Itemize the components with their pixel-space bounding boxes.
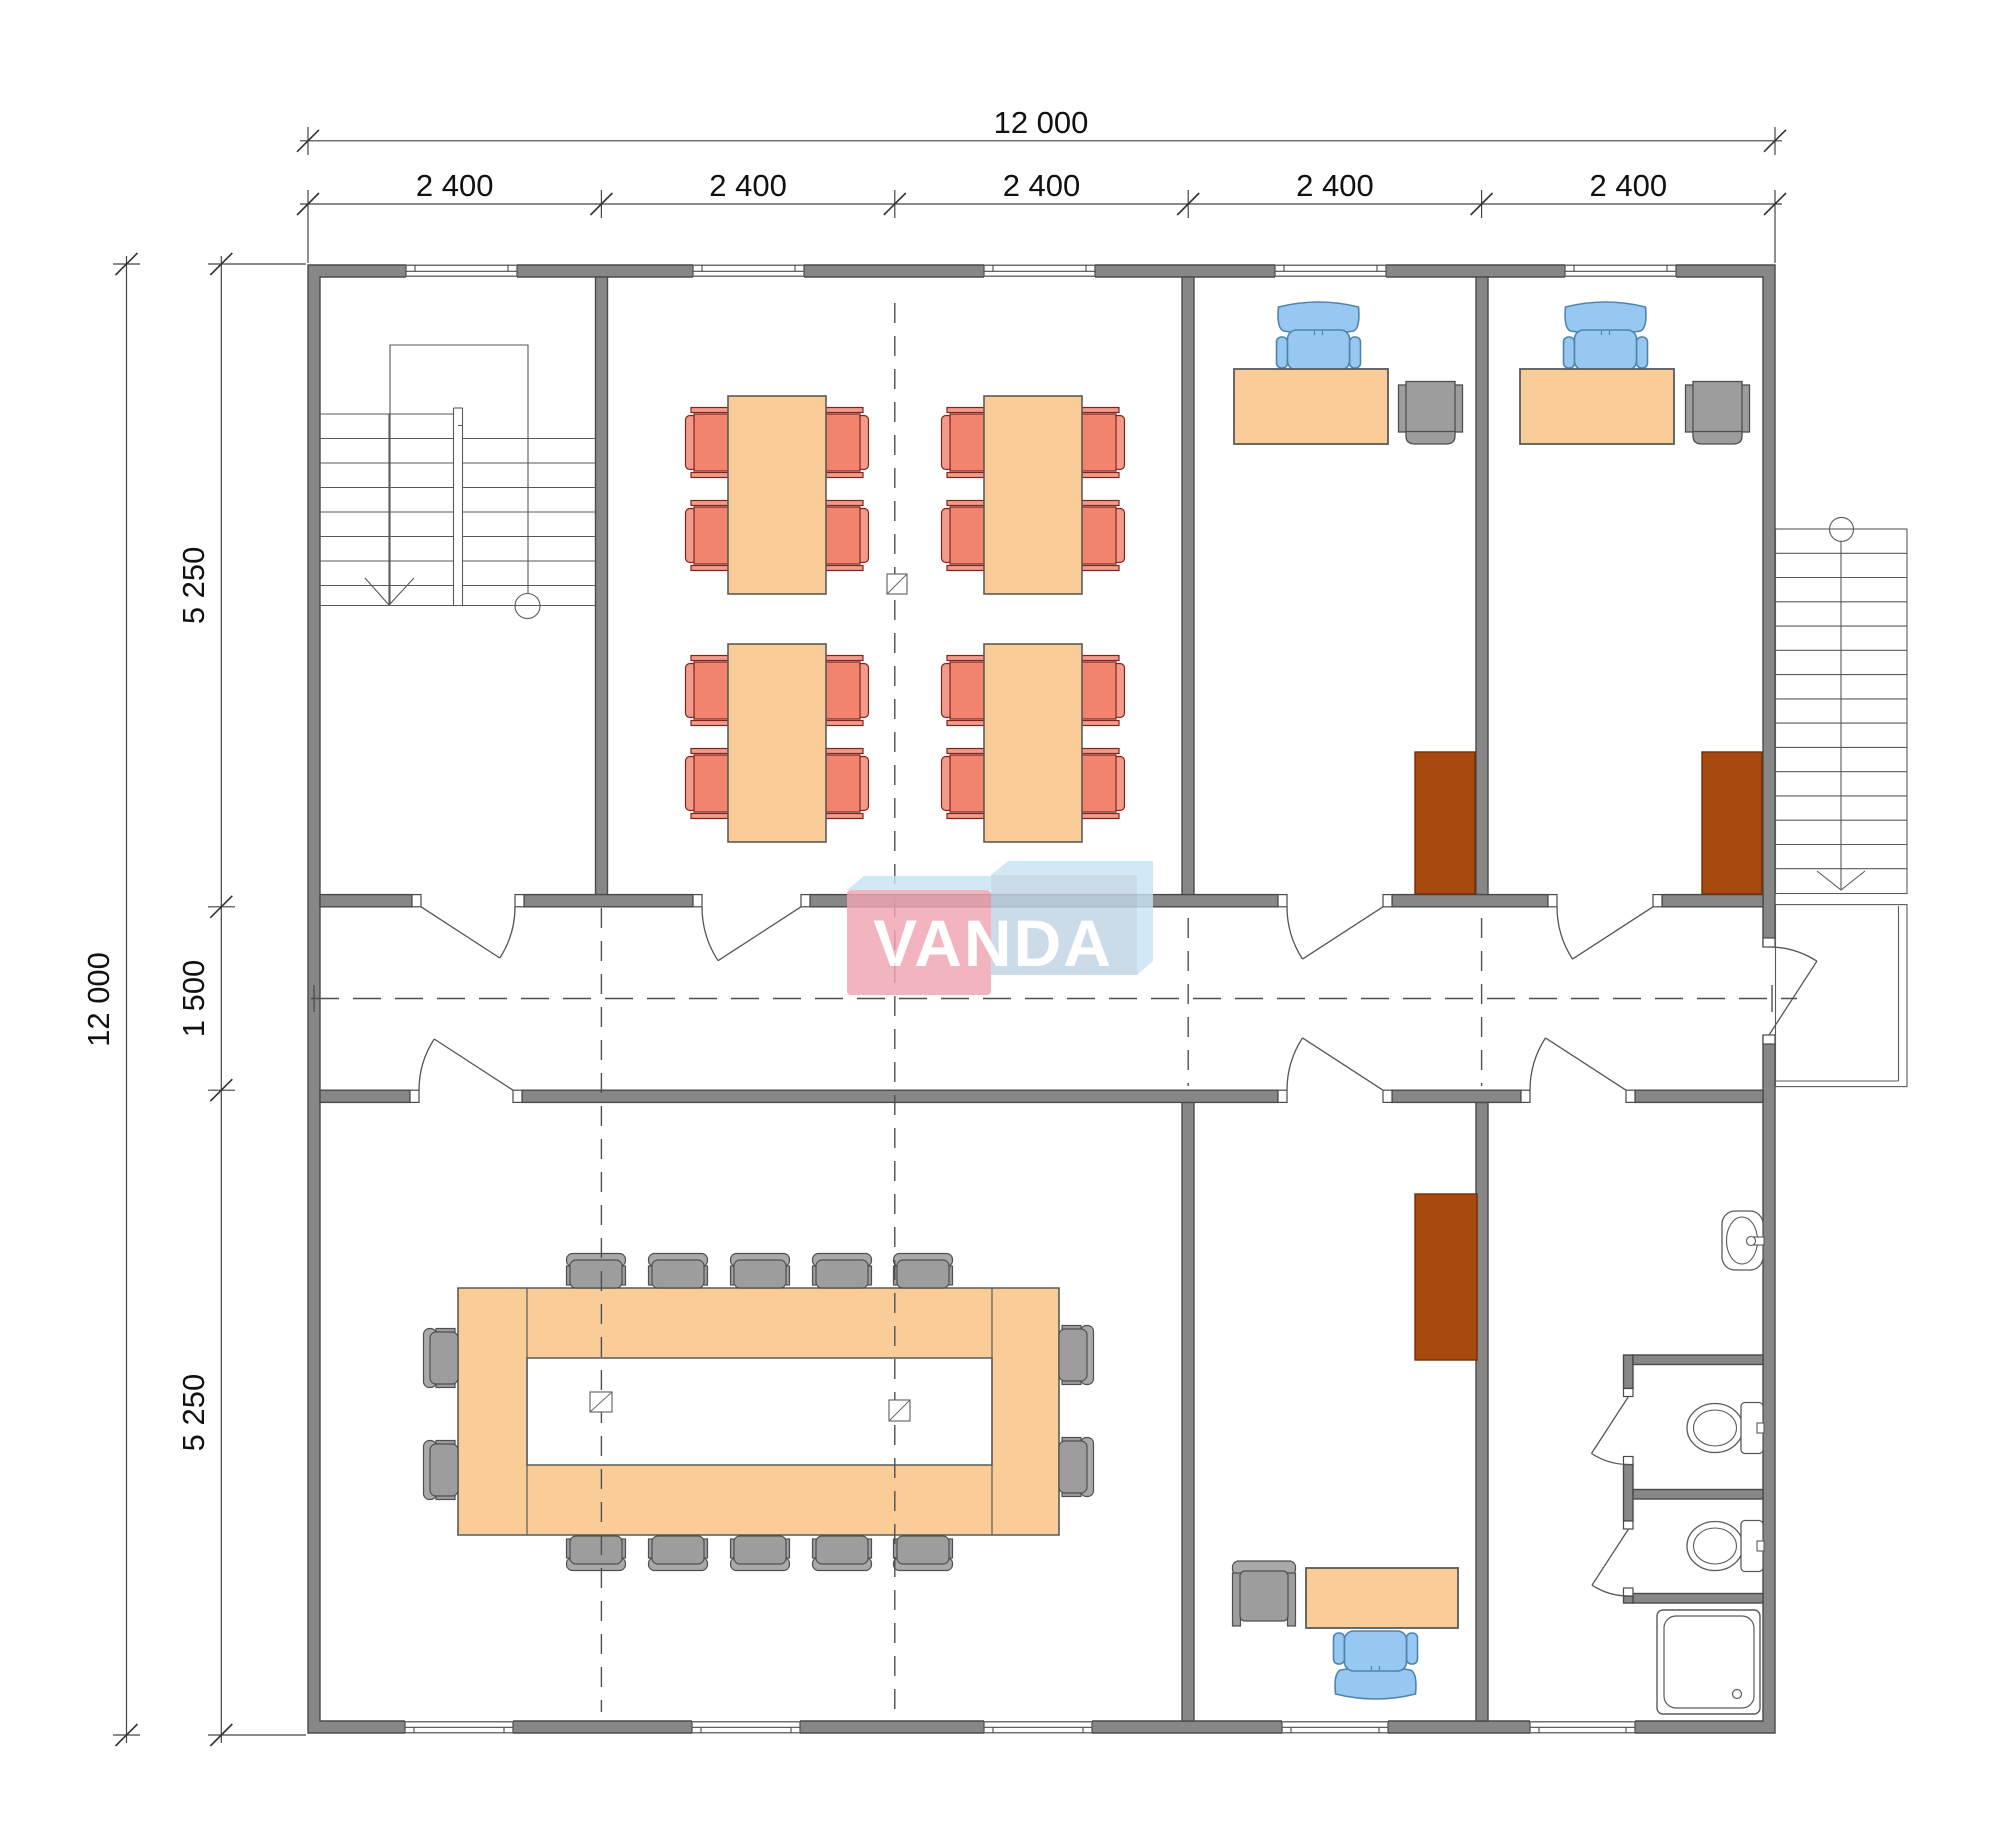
- svg-text:2 400: 2 400: [1296, 168, 1374, 203]
- svg-text:1 500: 1 500: [176, 960, 211, 1038]
- svg-text:VANDA: VANDA: [873, 906, 1113, 980]
- svg-text:12 000: 12 000: [994, 105, 1089, 140]
- svg-text:5 250: 5 250: [176, 547, 211, 625]
- svg-text:2 400: 2 400: [1590, 168, 1668, 203]
- svg-text:2 400: 2 400: [416, 168, 494, 203]
- svg-text:2 400: 2 400: [1003, 168, 1081, 203]
- svg-text:12 000: 12 000: [81, 952, 116, 1047]
- svg-text:5 250: 5 250: [176, 1374, 211, 1452]
- svg-text:2 400: 2 400: [709, 168, 787, 203]
